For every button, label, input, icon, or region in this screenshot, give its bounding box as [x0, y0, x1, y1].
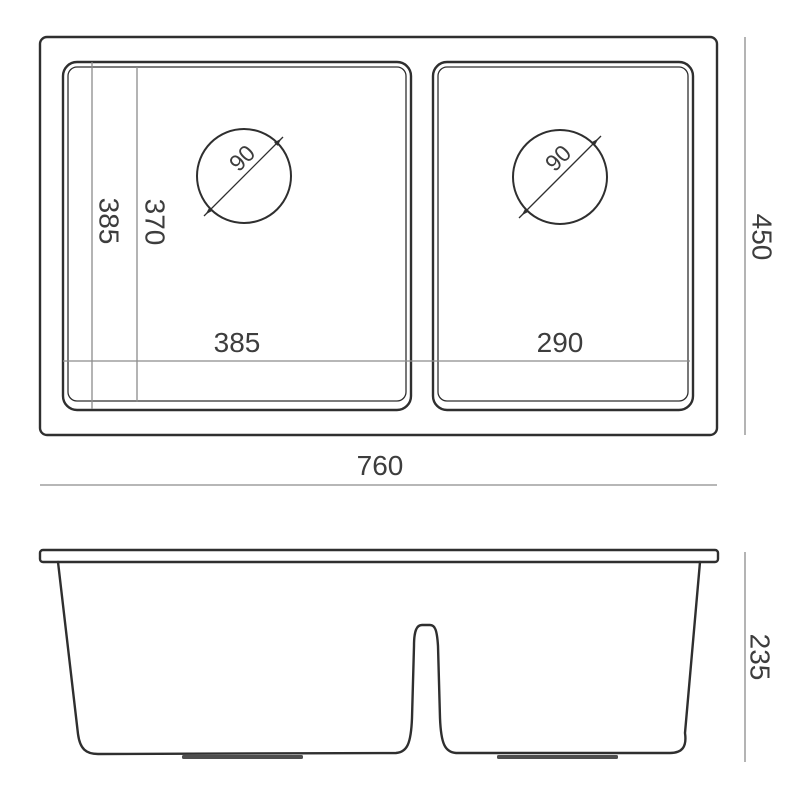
body-profile [58, 562, 700, 754]
left-drain-diameter-label: 90 [224, 140, 260, 176]
front-view: 235 [40, 550, 776, 762]
overall-depth-label: 450 [747, 214, 778, 261]
left-bowl-foot-pad [182, 755, 303, 759]
overall-width-label: 760 [357, 450, 404, 481]
left-bowl-inner-length-label: 370 [140, 199, 171, 246]
rim-profile [40, 550, 718, 562]
drawing-svg: 385 370 385 290 450 760 90 90 [0, 0, 800, 794]
top-view: 385 370 385 290 450 760 90 90 [40, 37, 778, 485]
bowl-height-label: 235 [745, 634, 776, 681]
left-bowl-width-label: 385 [214, 327, 261, 358]
right-bowl-width-label: 290 [537, 327, 584, 358]
left-bowl-length-label: 385 [94, 198, 125, 245]
right-drain-diameter-label: 90 [540, 140, 576, 176]
sink-dimension-drawing: 385 370 385 290 450 760 90 90 [0, 0, 800, 794]
right-bowl-foot-pad [497, 755, 618, 759]
